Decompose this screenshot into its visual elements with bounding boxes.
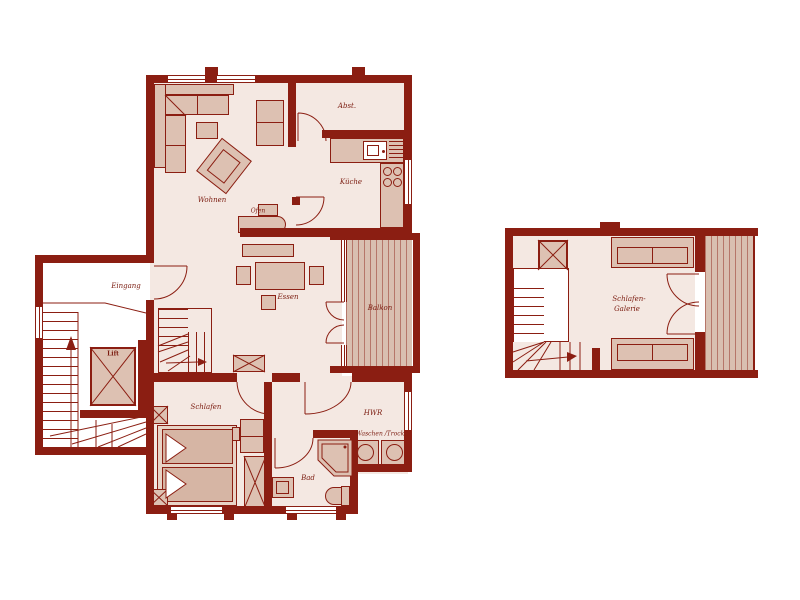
dining-sideboard	[242, 244, 294, 257]
wall	[146, 506, 171, 514]
wall	[330, 366, 420, 373]
wall	[404, 373, 412, 392]
tv-cabinet	[256, 122, 284, 146]
wall	[350, 430, 358, 506]
wall-pier	[224, 514, 234, 520]
wall	[505, 236, 513, 370]
room-label-eingang: Eingang	[111, 282, 141, 290]
bath-sink-basin	[276, 481, 289, 494]
wall	[350, 464, 412, 472]
floorplan-canvas: Wohnen Küche Abst. Ofen Essen Eingang Li…	[0, 0, 800, 600]
room-label-ofen: Ofen	[251, 208, 266, 215]
stove-burner	[393, 167, 402, 176]
window	[171, 506, 222, 514]
kitchen-drainer	[389, 141, 403, 160]
balcony-deck	[346, 240, 412, 366]
sofa-seat-vertical	[165, 115, 186, 173]
wall	[505, 228, 758, 236]
wardrobe	[244, 456, 266, 509]
door-gap	[695, 272, 705, 332]
stove-burner	[383, 167, 392, 176]
room-label-schlafen: Schlafen	[191, 403, 222, 411]
armchair-seat	[207, 149, 241, 184]
mattress	[162, 429, 233, 464]
room-label-schlafen-galerie-line2: Galerie	[614, 305, 640, 313]
wall	[592, 348, 600, 370]
wall	[80, 410, 146, 418]
window	[168, 75, 205, 83]
dining-chair	[309, 266, 324, 285]
window	[341, 345, 347, 366]
side-table	[196, 122, 218, 139]
room-label-bad: Bad	[301, 474, 315, 482]
room-label-essen: Essen	[278, 293, 299, 301]
toilet-tank	[341, 486, 350, 506]
wall	[35, 447, 148, 455]
wall	[330, 233, 420, 240]
wall	[505, 370, 758, 378]
dryer-machine-drum	[386, 444, 403, 461]
window	[404, 392, 412, 430]
wall	[288, 83, 296, 147]
wall	[35, 255, 148, 263]
chimney-box	[538, 240, 568, 270]
wall	[695, 236, 705, 272]
room-label-waschen-trocknen: Waschen /Trock.	[356, 431, 406, 438]
faucet-dot	[382, 150, 385, 153]
wall	[413, 233, 420, 373]
room-label-abstellraum: Abst.	[338, 102, 356, 110]
wall-pier	[287, 514, 297, 520]
gallery-sofa-divider	[652, 344, 653, 361]
wall	[292, 197, 300, 205]
window	[35, 307, 43, 338]
deck-edge	[753, 236, 755, 370]
room-label-hwr: HWR	[364, 409, 383, 417]
sideboard-chest	[233, 355, 265, 372]
wall	[272, 373, 300, 382]
wall	[146, 373, 237, 382]
wall-pier	[336, 514, 346, 520]
wall	[146, 300, 154, 514]
tv-cabinet	[256, 100, 284, 123]
wall-pier	[205, 67, 218, 75]
stairs-treads	[188, 332, 211, 372]
dining-table	[255, 262, 305, 290]
stairwell-treads	[43, 312, 78, 445]
window	[217, 75, 255, 83]
wall	[404, 83, 412, 160]
wall	[205, 75, 217, 83]
room-label-wohnen: Wohnen	[198, 196, 227, 204]
terrace-deck	[705, 236, 753, 370]
wall	[255, 75, 412, 83]
room-label-balkon: Balkon	[368, 304, 393, 312]
wall-pier	[352, 67, 365, 75]
wall	[222, 506, 286, 514]
sofa-back-horizontal	[154, 84, 234, 95]
gallery-sofa-divider	[652, 247, 653, 264]
wall	[352, 373, 412, 382]
dining-chair	[236, 266, 251, 285]
mattress	[162, 467, 233, 502]
dresser-divider	[240, 436, 264, 437]
sofa-cushion-divider	[197, 95, 198, 115]
stove-burner	[393, 178, 402, 187]
room-label-kueche: Küche	[340, 178, 362, 186]
wall	[35, 263, 43, 307]
sofa-cushion-divider	[165, 145, 186, 146]
stairs-treads	[159, 309, 188, 346]
window	[341, 240, 347, 302]
stove-burner	[383, 178, 392, 187]
window	[404, 160, 412, 204]
wall	[313, 430, 350, 438]
wall	[35, 338, 43, 447]
wall	[138, 340, 146, 418]
wall	[322, 130, 404, 138]
wall	[146, 75, 168, 83]
wall-pier	[600, 222, 620, 230]
wall	[336, 506, 358, 514]
dresser-stool	[232, 427, 240, 441]
wall	[264, 382, 272, 506]
wall	[146, 83, 154, 263]
window	[286, 506, 336, 514]
wall	[695, 332, 705, 370]
wall-pier	[167, 514, 177, 520]
room-label-lift: Lift	[107, 351, 119, 358]
room-label-schlafen-galerie-line1: Schlafen-	[612, 295, 645, 303]
kitchen-sink-basin	[367, 145, 379, 156]
washing-machine-drum	[357, 444, 374, 461]
gallery-stair-treads	[514, 288, 544, 342]
dining-chair	[261, 295, 276, 310]
